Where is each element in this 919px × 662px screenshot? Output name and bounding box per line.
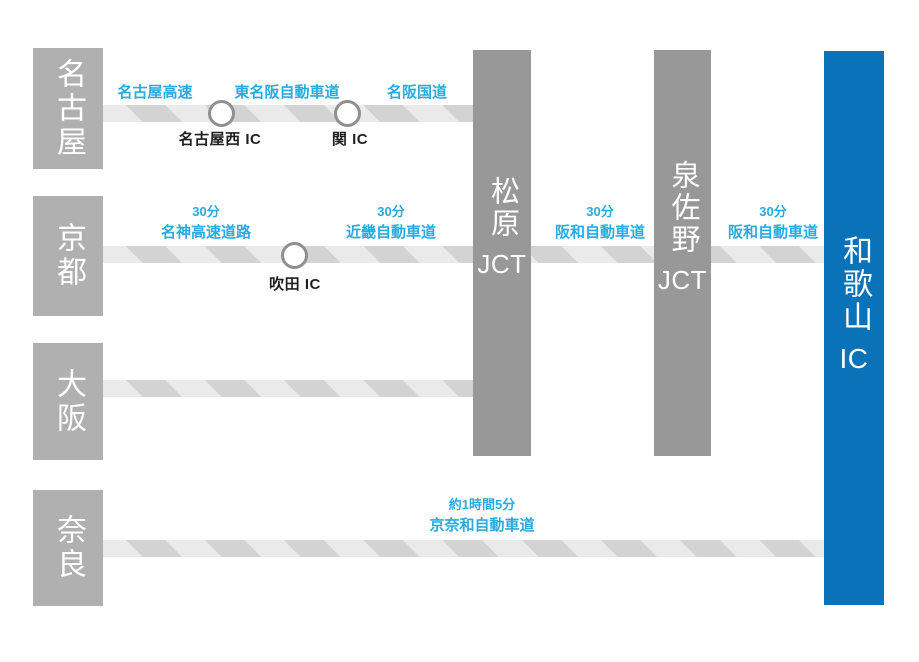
wakayama-ic-suffix: IC [840,343,869,375]
route-label-meihan-kokudo: 名阪国道 [347,84,487,103]
route-label-kinki-expwy: 30分 近畿自動車道 [321,205,461,243]
travel-time: 30分 [530,205,670,220]
seki-ic-label: 関 IC [285,128,415,149]
matsubara-jct-suffix: JCT [477,249,526,280]
wakayama-ic-name: 和歌山 [839,235,869,334]
road-name: 近畿自動車道 [321,224,461,243]
izumisano-jct-name: 泉佐野 [668,160,697,256]
izumisano-jct-bar: 泉佐野 JCT [654,50,711,456]
road-name: 阪和自動車道 [530,224,670,243]
city-label-nagoya: 名古屋 [53,58,83,160]
route-label-hanwa-2: 30分 阪和自動車道 [703,205,843,243]
road-kyoto-to-wakayama [103,246,824,263]
wakayama-ic-bar: 和歌山 IC [824,51,884,605]
suita-ic-marker [281,242,308,269]
road-nagoya-to-matsubara [103,105,473,122]
road-name: 名阪国道 [347,84,487,103]
nagoya-nishi-ic-marker [208,100,235,127]
highway-access-diagram: 名古屋 京都 大阪 奈良 名古屋高速 東名阪自動車道 名阪国道 30分 名神高速… [0,0,919,662]
nagoya-nishi-ic-label: 名古屋西 IC [155,128,285,149]
izumisano-jct-suffix: JCT [658,265,707,296]
route-label-nagoya-expwy: 名古屋高速 [85,84,225,103]
suita-ic-label: 吹田 IC [230,273,360,294]
travel-time: 30分 [703,205,843,220]
matsubara-jct-bar: 松原 JCT [473,50,531,456]
city-box-kyoto: 京都 [33,196,103,316]
city-box-nara: 奈良 [33,490,103,606]
city-label-kyoto: 京都 [53,222,83,290]
road-name: 名古屋高速 [85,84,225,103]
road-name: 名神高速道路 [136,224,276,243]
city-label-nara: 奈良 [53,514,83,582]
city-box-nagoya: 名古屋 [33,48,103,169]
travel-time: 約1時間5分 [412,498,552,513]
route-label-hanwa-1: 30分 阪和自動車道 [530,205,670,243]
city-label-osaka: 大阪 [53,368,83,436]
route-label-keinawa: 約1時間5分 京奈和自動車道 [412,498,552,536]
city-box-osaka: 大阪 [33,343,103,460]
route-label-meishin: 30分 名神高速道路 [136,205,276,243]
travel-time: 30分 [321,205,461,220]
route-label-higashi-meihan: 東名阪自動車道 [217,84,357,103]
seki-ic-marker [334,100,361,127]
travel-time: 30分 [136,205,276,220]
road-name: 東名阪自動車道 [217,84,357,103]
road-osaka-to-matsubara [103,380,473,397]
road-name: 京奈和自動車道 [412,517,552,536]
matsubara-jct-name: 松原 [488,176,517,240]
road-name: 阪和自動車道 [703,224,843,243]
road-nara-to-wakayama [103,540,824,557]
